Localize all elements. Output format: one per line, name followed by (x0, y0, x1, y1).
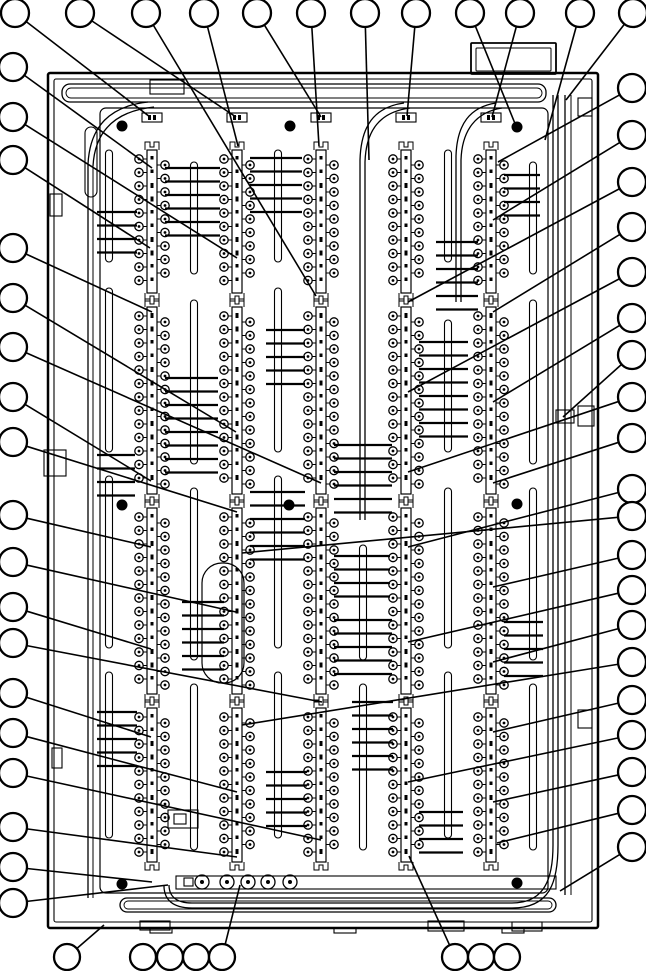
callout-balloon (0, 679, 27, 707)
callout-balloon (566, 0, 594, 27)
bottom-grommet-rail (176, 875, 556, 889)
callout-balloon (618, 121, 646, 149)
leader-lines (24, 21, 624, 949)
callout-balloon (0, 428, 27, 456)
callout-balloon (0, 383, 27, 411)
callout-balloon (0, 629, 27, 657)
callout-balloon (0, 548, 27, 576)
diagram-canvas (0, 0, 646, 971)
callout-balloon (618, 502, 646, 530)
callout-balloon (618, 168, 646, 196)
callout-balloon (0, 889, 27, 917)
callout-balloon (0, 813, 27, 841)
callout-balloon (618, 721, 646, 749)
callout-balloon (619, 0, 646, 27)
callout-balloon (157, 944, 183, 970)
terminal-strip-column (304, 113, 338, 870)
terminal-strip-column (135, 113, 169, 870)
callout-balloon (618, 686, 646, 714)
callout-balloon (1, 0, 29, 27)
callout-balloon (618, 74, 646, 102)
callout-balloon (618, 541, 646, 569)
callout-balloon (0, 234, 27, 262)
callout-balloon (297, 0, 325, 27)
callout-balloon (0, 501, 27, 529)
callout-balloon (132, 0, 160, 27)
callout-balloon (130, 944, 156, 970)
callout-balloon (618, 648, 646, 676)
callout-balloon (618, 383, 646, 411)
callout-balloon (618, 611, 646, 639)
callout-balloon (618, 758, 646, 786)
callout-balloon (618, 424, 646, 452)
callout-balloon (456, 0, 484, 27)
callout-balloon (0, 146, 27, 174)
callout-balloon (0, 103, 27, 131)
callout-balloon (618, 796, 646, 824)
callout-balloon (0, 759, 27, 787)
callout-balloon (351, 0, 379, 27)
panel-assembly-diagram (0, 0, 646, 971)
callout-balloon (618, 833, 646, 861)
callout-balloon (209, 944, 235, 970)
callout-balloon (494, 944, 520, 970)
callout-balloon (54, 944, 80, 970)
callout-balloon (0, 593, 27, 621)
callout-balloon (618, 576, 646, 604)
callout-balloon (0, 284, 27, 312)
callout-balloon (618, 304, 646, 332)
callout-balloon (402, 0, 430, 27)
callout-balloon (183, 944, 209, 970)
callout-balloon (190, 0, 218, 27)
callout-balloon (618, 213, 646, 241)
terminal-strip-column (220, 113, 254, 870)
callout-balloon (618, 475, 646, 503)
callout-balloon (0, 53, 27, 81)
callout-balloon (618, 258, 646, 286)
callout-balloon (243, 0, 271, 27)
callout-balloon (0, 719, 27, 747)
callout-balloon (506, 0, 534, 27)
callout-balloon (618, 341, 646, 369)
terminal-strip-column (474, 113, 508, 870)
callout-balloon (0, 333, 27, 361)
callout-balloon (0, 853, 27, 881)
callout-balloon (468, 944, 494, 970)
callout-balloon (66, 0, 94, 27)
callout-balloon (442, 944, 468, 970)
terminal-strip-column (389, 113, 423, 870)
